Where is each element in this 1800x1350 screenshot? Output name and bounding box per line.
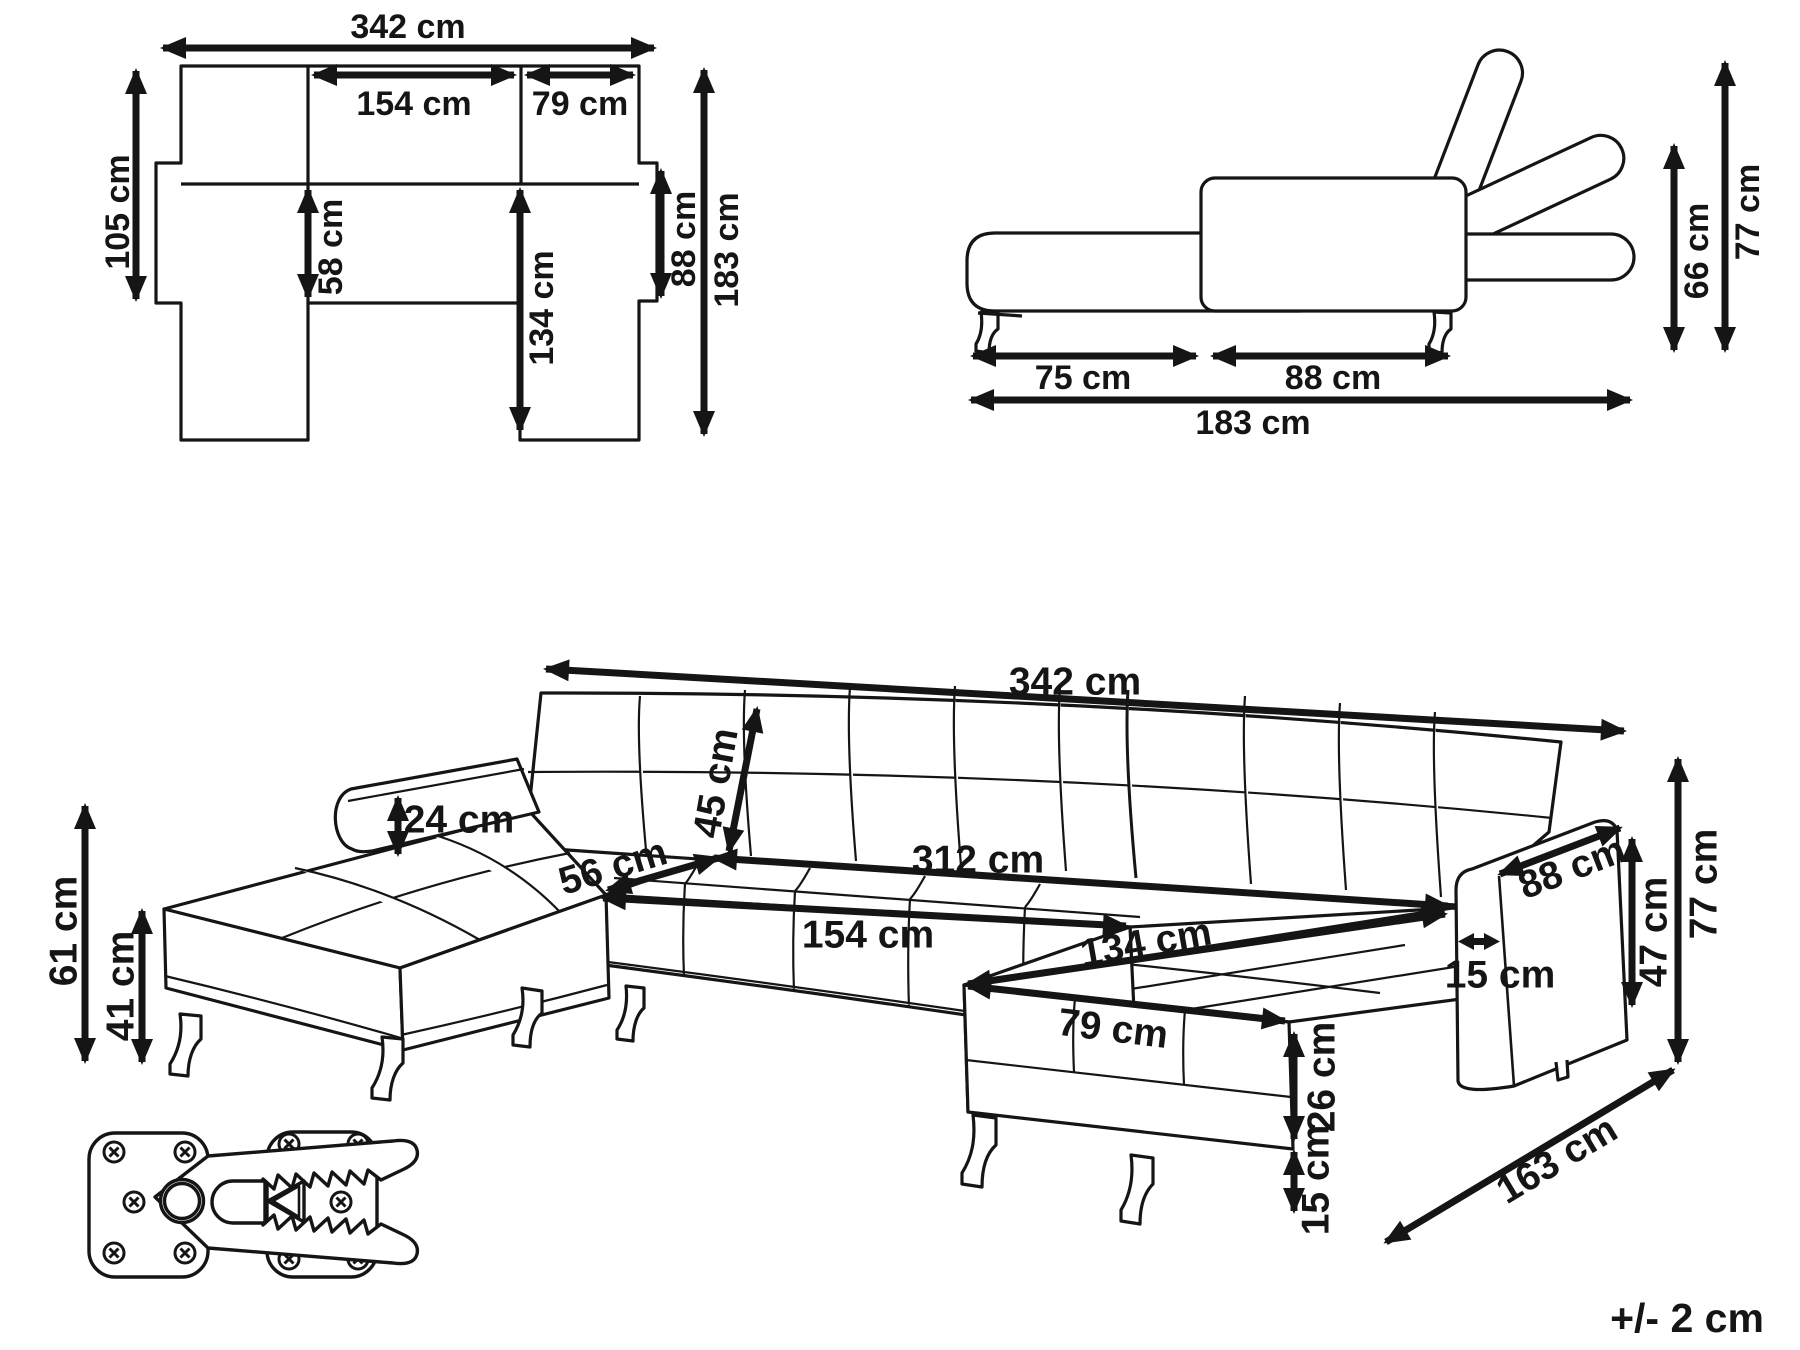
svg-text:75 cm: 75 cm [1035,359,1131,397]
svg-text:79 cm: 79 cm [532,85,628,123]
svg-text:61 cm: 61 cm [43,876,86,987]
svg-text:342 cm: 342 cm [350,8,465,46]
svg-text:88 cm: 88 cm [665,191,703,287]
svg-text:154 cm: 154 cm [802,914,934,957]
svg-text:41 cm: 41 cm [100,931,143,1042]
svg-text:183 cm: 183 cm [1195,404,1310,442]
svg-text:183 cm: 183 cm [708,192,746,307]
svg-text:77 cm: 77 cm [1729,164,1767,260]
svg-text:26 cm: 26 cm [1301,1022,1344,1133]
svg-text:66 cm: 66 cm [1678,203,1716,299]
svg-text:77 cm: 77 cm [1683,829,1726,940]
svg-text:15 cm: 15 cm [1295,1125,1338,1236]
svg-text:47 cm: 47 cm [1633,877,1676,988]
svg-text:312 cm: 312 cm [912,839,1044,882]
svg-text:163 cm: 163 cm [1489,1108,1625,1213]
svg-text:88 cm: 88 cm [1285,359,1381,397]
svg-text:+/- 2 cm: +/- 2 cm [1610,1295,1764,1341]
svg-text:134 cm: 134 cm [523,250,561,365]
svg-text:342 cm: 342 cm [1009,661,1141,704]
svg-text:24 cm: 24 cm [404,799,515,842]
svg-text:105 cm: 105 cm [99,154,137,269]
svg-text:58 cm: 58 cm [312,199,350,295]
svg-text:154 cm: 154 cm [356,85,471,123]
svg-text:15 cm: 15 cm [1445,954,1556,997]
